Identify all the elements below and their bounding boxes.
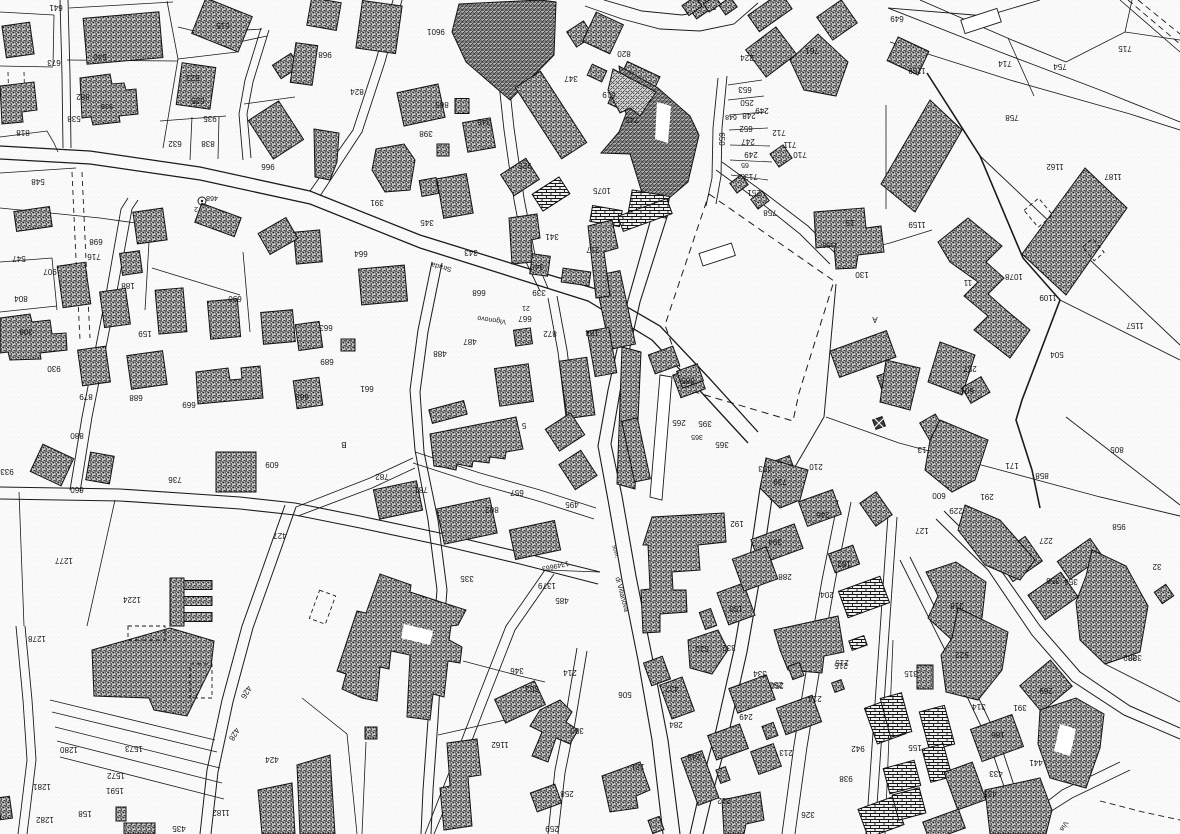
- svg-text:229: 229: [949, 506, 963, 515]
- svg-text:435: 435: [172, 824, 186, 833]
- svg-text:246: 246: [816, 510, 830, 519]
- svg-text:204: 204: [820, 590, 834, 599]
- svg-text:227: 227: [1039, 536, 1053, 545]
- svg-text:754: 754: [1053, 62, 1067, 71]
- svg-text:1572: 1572: [107, 771, 125, 780]
- svg-text:539: 539: [101, 102, 113, 109]
- svg-text:1187: 1187: [1104, 172, 1122, 181]
- svg-text:247: 247: [741, 137, 755, 146]
- svg-text:716: 716: [87, 252, 101, 261]
- svg-text:395: 395: [698, 419, 712, 428]
- svg-text:662: 662: [295, 392, 309, 401]
- svg-text:761: 761: [805, 46, 819, 55]
- svg-text:427: 427: [273, 531, 287, 540]
- svg-text:250: 250: [740, 98, 754, 107]
- svg-text:485: 485: [555, 596, 569, 605]
- svg-text:127: 127: [915, 526, 929, 535]
- svg-text:192: 192: [730, 519, 744, 528]
- svg-text:601: 601: [960, 386, 974, 395]
- svg-text:966: 966: [261, 162, 275, 171]
- svg-text:248: 248: [742, 111, 756, 120]
- svg-text:663: 663: [319, 323, 333, 332]
- svg-text:802: 802: [485, 505, 499, 514]
- svg-text:380: 380: [1128, 653, 1142, 662]
- svg-text:347: 347: [564, 74, 578, 83]
- svg-text:334: 334: [753, 669, 767, 678]
- svg-text:441: 441: [1029, 758, 1043, 767]
- svg-text:13: 13: [917, 445, 926, 454]
- svg-text:650: 650: [717, 132, 726, 146]
- svg-text:1591: 1591: [106, 786, 124, 795]
- svg-text:433: 433: [989, 769, 1003, 778]
- svg-text:487: 487: [463, 337, 477, 346]
- svg-text:158: 158: [78, 809, 92, 818]
- svg-text:258: 258: [560, 789, 574, 798]
- svg-text:739: 739: [773, 477, 787, 486]
- svg-text:522: 522: [955, 650, 969, 659]
- svg-text:1379: 1379: [538, 581, 556, 590]
- svg-text:858: 858: [1035, 471, 1049, 480]
- svg-text:804: 804: [14, 294, 28, 303]
- svg-text:488: 488: [433, 349, 447, 358]
- svg-text:619: 619: [602, 90, 616, 99]
- svg-text:326: 326: [801, 810, 815, 819]
- svg-text:925: 925: [518, 161, 532, 170]
- svg-text:942: 942: [851, 744, 865, 753]
- svg-text:865: 865: [435, 100, 449, 109]
- svg-text:736: 736: [168, 475, 182, 484]
- svg-text:805: 805: [1110, 445, 1124, 454]
- svg-text:661: 661: [360, 384, 374, 393]
- svg-text:553: 553: [525, 684, 539, 693]
- svg-text:907: 907: [43, 267, 57, 276]
- svg-text:930: 930: [47, 364, 61, 373]
- svg-text:879: 879: [79, 392, 93, 401]
- svg-text:61: 61: [737, 172, 745, 179]
- svg-text:435: 435: [983, 789, 997, 798]
- svg-text:171: 171: [1005, 461, 1019, 470]
- svg-text:365: 365: [715, 440, 729, 449]
- svg-text:130: 130: [855, 270, 869, 279]
- svg-text:186: 186: [991, 730, 1005, 739]
- svg-text:A: A: [872, 315, 878, 324]
- svg-text:394: 394: [768, 537, 782, 546]
- svg-text:215: 215: [834, 661, 848, 670]
- svg-text:641: 641: [49, 3, 63, 12]
- svg-text:933: 933: [0, 467, 14, 476]
- svg-text:506: 506: [618, 690, 632, 699]
- svg-text:968: 968: [318, 50, 332, 59]
- svg-text:212: 212: [717, 796, 731, 805]
- svg-text:391: 391: [370, 198, 384, 207]
- svg-text:213: 213: [779, 748, 793, 757]
- svg-text:332: 332: [722, 643, 736, 652]
- svg-text:217: 217: [586, 245, 600, 254]
- svg-text:600: 600: [932, 491, 946, 500]
- svg-text:782: 782: [375, 472, 389, 481]
- svg-text:1130: 1130: [822, 241, 837, 248]
- svg-text:882: 882: [76, 92, 90, 101]
- svg-text:9601: 9601: [427, 27, 445, 36]
- svg-text:453: 453: [758, 464, 772, 473]
- svg-text:1109: 1109: [1039, 293, 1057, 302]
- svg-text:652: 652: [739, 124, 753, 133]
- svg-text:547: 547: [12, 254, 26, 263]
- svg-text:758: 758: [1005, 113, 1019, 122]
- svg-text:424: 424: [265, 755, 279, 764]
- svg-text:880: 880: [70, 431, 84, 440]
- svg-text:188: 188: [121, 281, 135, 290]
- svg-text:710: 710: [793, 150, 807, 159]
- svg-text:249: 249: [739, 712, 753, 721]
- svg-text:365: 365: [691, 433, 703, 440]
- svg-text:1075: 1075: [593, 186, 611, 195]
- svg-text:159: 159: [138, 329, 152, 338]
- svg-text:667: 667: [518, 314, 532, 323]
- svg-text:660: 660: [70, 485, 84, 494]
- svg-text:510: 510: [695, 644, 709, 653]
- svg-text:250: 250: [770, 681, 784, 690]
- svg-text:350: 350: [570, 726, 584, 735]
- svg-text:249: 249: [744, 150, 758, 159]
- svg-text:210: 210: [809, 462, 823, 471]
- svg-text:468: 468: [206, 194, 218, 201]
- svg-text:648: 648: [725, 113, 737, 120]
- svg-text:288: 288: [778, 572, 792, 581]
- svg-text:182: 182: [837, 559, 851, 568]
- svg-text:838: 838: [201, 139, 215, 148]
- svg-text:1278: 1278: [28, 634, 46, 643]
- svg-text:340: 340: [530, 262, 544, 271]
- svg-text:712: 712: [772, 128, 786, 137]
- svg-text:318: 318: [950, 601, 964, 610]
- svg-text:315: 315: [904, 669, 918, 678]
- svg-text:1159: 1159: [908, 66, 926, 75]
- svg-text:609: 609: [265, 460, 279, 469]
- svg-text:346: 346: [510, 666, 524, 675]
- svg-text:745: 745: [625, 115, 639, 124]
- svg-text:714: 714: [998, 59, 1012, 68]
- svg-text:1281: 1281: [33, 782, 51, 791]
- svg-text:345: 345: [420, 218, 434, 227]
- svg-text:291: 291: [980, 492, 994, 501]
- svg-text:818: 818: [16, 128, 30, 137]
- svg-text:251: 251: [747, 188, 761, 197]
- svg-text:673: 673: [47, 58, 61, 67]
- svg-text:1182: 1182: [212, 808, 230, 817]
- svg-text:346: 346: [477, 117, 491, 126]
- svg-text:184: 184: [585, 328, 599, 337]
- svg-text:698: 698: [89, 237, 103, 246]
- svg-text:155: 155: [908, 743, 922, 752]
- svg-text:214: 214: [808, 694, 822, 703]
- svg-text:B: B: [341, 440, 346, 449]
- svg-text:958: 958: [1112, 522, 1126, 531]
- svg-text:1162: 1162: [491, 740, 509, 749]
- svg-text:649: 649: [890, 14, 904, 23]
- svg-text:711: 711: [783, 140, 796, 149]
- svg-text:781: 781: [414, 485, 428, 494]
- svg-text:65: 65: [741, 161, 749, 168]
- svg-text:548: 548: [31, 177, 45, 186]
- svg-text:885: 885: [681, 376, 695, 385]
- svg-text:5: 5: [521, 421, 526, 430]
- svg-text:265: 265: [672, 418, 686, 427]
- svg-text:248: 248: [687, 752, 701, 761]
- svg-text:15: 15: [845, 218, 854, 227]
- svg-text:150: 150: [729, 604, 743, 613]
- svg-text:540: 540: [93, 52, 107, 61]
- svg-text:224: 224: [740, 53, 754, 62]
- svg-text:688: 688: [129, 393, 143, 402]
- svg-text:2: 2: [194, 205, 198, 212]
- svg-text:495: 495: [565, 500, 579, 509]
- svg-text:715: 715: [1118, 44, 1132, 53]
- svg-text:1573: 1573: [125, 744, 143, 753]
- svg-text:308: 308: [19, 327, 33, 336]
- svg-text:341: 341: [545, 232, 559, 241]
- svg-text:1162: 1162: [1046, 162, 1064, 171]
- svg-text:935: 935: [203, 114, 217, 123]
- svg-text:690: 690: [228, 294, 242, 303]
- svg-text:689: 689: [320, 357, 334, 366]
- svg-text:11: 11: [963, 278, 972, 287]
- svg-text:615: 615: [216, 21, 230, 30]
- svg-text:1224: 1224: [123, 595, 141, 604]
- svg-text:653: 653: [738, 85, 752, 94]
- svg-text:623: 623: [186, 73, 200, 82]
- svg-text:314: 314: [972, 702, 986, 711]
- svg-text:257: 257: [963, 364, 977, 373]
- svg-text:664: 664: [354, 249, 368, 258]
- svg-text:872: 872: [543, 329, 557, 338]
- svg-text:758: 758: [763, 208, 777, 217]
- svg-text:657: 657: [510, 488, 524, 497]
- svg-text:437: 437: [665, 684, 679, 693]
- svg-text:32: 32: [1152, 562, 1161, 571]
- svg-text:669: 669: [182, 400, 196, 409]
- svg-text:1159: 1159: [908, 220, 926, 229]
- svg-text:820: 820: [617, 49, 631, 58]
- svg-text:356: 356: [1064, 577, 1078, 586]
- svg-text:284: 284: [669, 720, 683, 729]
- svg-text:398: 398: [419, 129, 433, 138]
- svg-text:824: 824: [350, 87, 364, 96]
- svg-text:335: 335: [460, 574, 474, 583]
- svg-text:21: 21: [522, 304, 530, 311]
- svg-text:259: 259: [545, 824, 559, 833]
- svg-text:632: 632: [168, 139, 182, 148]
- svg-text:538: 538: [67, 114, 81, 123]
- svg-text:339: 339: [532, 288, 546, 297]
- svg-text:504: 504: [1050, 350, 1064, 359]
- svg-text:269: 269: [1039, 686, 1053, 695]
- svg-text:1280: 1280: [60, 745, 78, 754]
- svg-text:121: 121: [631, 762, 645, 771]
- svg-text:1157: 1157: [1126, 321, 1144, 330]
- svg-text:391: 391: [1013, 703, 1027, 712]
- svg-text:214: 214: [563, 668, 577, 677]
- svg-text:356: 356: [1046, 576, 1060, 585]
- svg-text:1277: 1277: [55, 556, 73, 565]
- svg-text:1282: 1282: [36, 815, 54, 824]
- svg-text:625: 625: [191, 96, 205, 105]
- svg-text:343: 343: [464, 248, 478, 257]
- svg-text:938: 938: [839, 774, 853, 783]
- svg-text:1078: 1078: [1005, 272, 1023, 281]
- svg-text:249: 249: [755, 106, 769, 115]
- svg-text:668: 668: [472, 288, 486, 297]
